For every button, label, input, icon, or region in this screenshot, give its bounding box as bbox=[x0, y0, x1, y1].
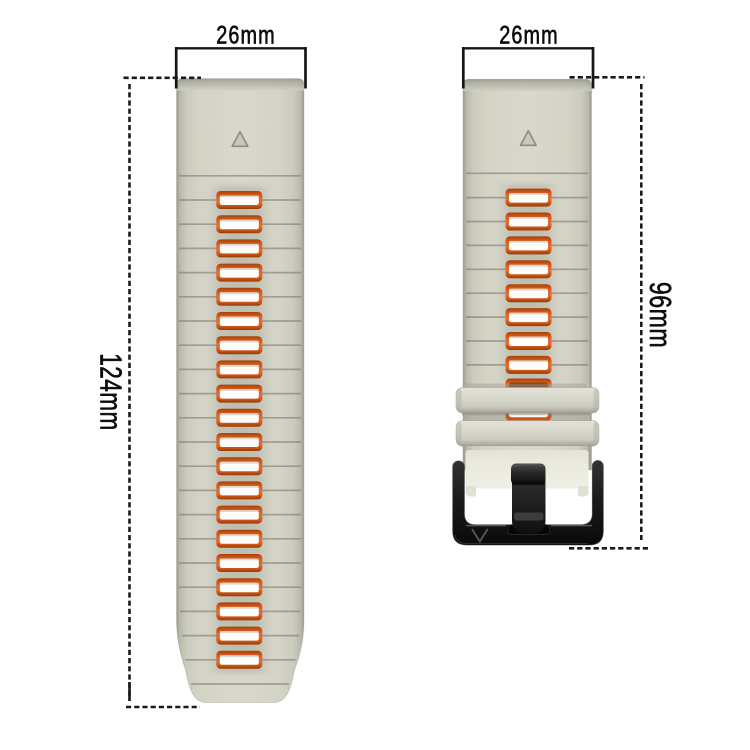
svg-text:26mm: 26mm bbox=[499, 21, 559, 49]
svg-text:124mm: 124mm bbox=[94, 353, 128, 430]
svg-text:26mm: 26mm bbox=[216, 21, 276, 49]
svg-text:96mm: 96mm bbox=[643, 282, 678, 348]
